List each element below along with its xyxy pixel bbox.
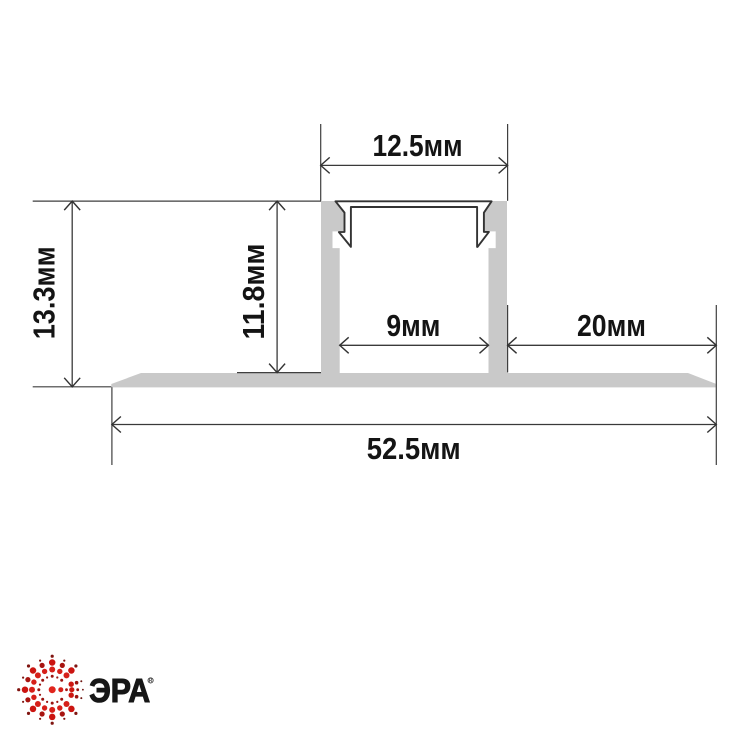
svg-text:20мм: 20мм	[577, 308, 646, 343]
svg-text:13.3мм: 13.3мм	[27, 246, 62, 339]
svg-text:R: R	[149, 678, 153, 684]
svg-text:ЭРА: ЭРА	[89, 672, 150, 709]
svg-text:12.5мм: 12.5мм	[373, 128, 463, 163]
svg-text:11.8мм: 11.8мм	[236, 244, 271, 340]
svg-text:9мм: 9мм	[386, 308, 440, 343]
svg-text:52.5мм: 52.5мм	[367, 431, 461, 466]
